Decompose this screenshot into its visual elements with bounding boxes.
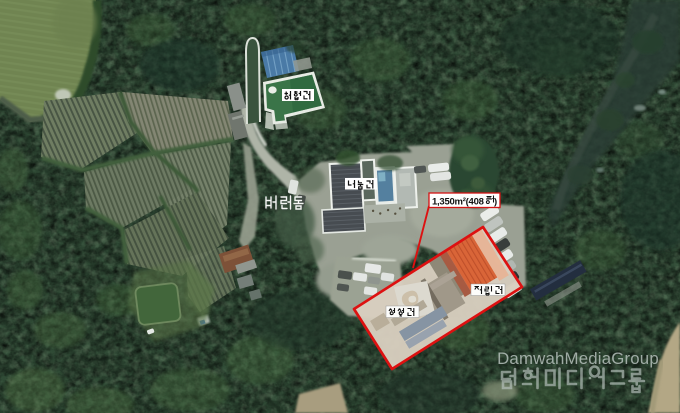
svg-text:DamwahMediaGroup: DamwahMediaGroup: [497, 349, 659, 368]
svg-text:): ): [494, 197, 497, 208]
svg-text:1,350m²(408: 1,350m²(408: [432, 197, 484, 208]
